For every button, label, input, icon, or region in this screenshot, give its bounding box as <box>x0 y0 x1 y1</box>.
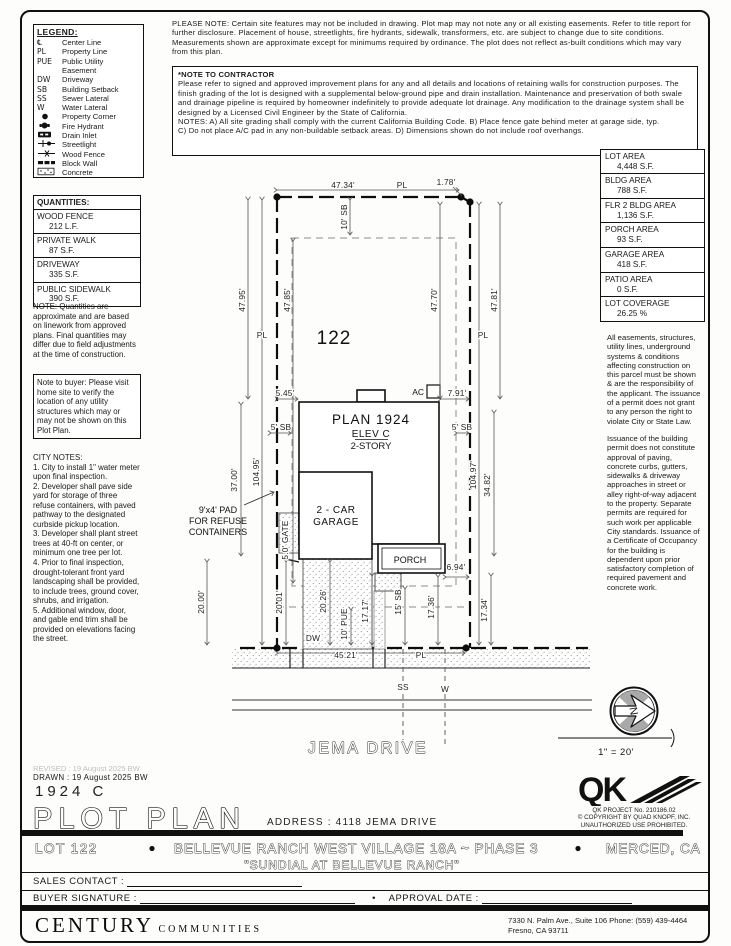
pl-label-right: PL <box>478 330 489 340</box>
dim-jog: 1.78' <box>437 177 456 187</box>
pl-label-left: PL <box>257 330 268 340</box>
street-and-sidewalk: SS W JEMA DRIVE <box>232 649 592 757</box>
quantity-row: PRIVATE WALK87 S.F. <box>33 233 141 259</box>
legend-item: PLProperty Line <box>37 47 140 56</box>
quantity-row: DRIVEWAY335 S.F. <box>33 257 141 283</box>
legend-item: SBBuilding Setback <box>37 84 140 93</box>
refuse-arrow <box>244 492 274 505</box>
dim-top-width: 47.34' <box>331 180 355 190</box>
street-name: JEMA DRIVE <box>308 740 428 757</box>
builder-name-2: COMMUNITIES <box>158 924 262 935</box>
lot-row-svg: LOT 122 BELLEVUE RANCH WEST VILLAGE 18A … <box>22 838 708 872</box>
quantities-table: QUANTITIES: WOOD FENCE212 L.F. PRIVATE W… <box>33 196 141 307</box>
plan-story: 2-STORY <box>351 441 392 452</box>
refuse-label-1: 9'x4' PAD <box>199 505 238 515</box>
dim-right-front: 17.34' <box>479 598 489 622</box>
lot-label: LOT 122 <box>35 841 98 856</box>
quantity-row: WOOD FENCE212 L.F. <box>33 209 141 235</box>
sales-contact-label: SALES CONTACT : <box>33 876 124 887</box>
city-label: MERCED, CA <box>606 841 701 856</box>
dim-pue: 10' PUE <box>339 608 349 640</box>
property-line-symbol: PL <box>37 47 62 56</box>
quantities-note: NOTE: Quantities are approximate and are… <box>33 302 140 360</box>
north-arrow: N <box>611 688 658 735</box>
dim-left-rear: 47.95' <box>237 288 247 312</box>
dim-left-setback: 5' SB <box>271 422 292 432</box>
porch-label: PORCH <box>394 555 427 565</box>
gate-label: 5.0' GATE <box>280 520 290 559</box>
plan-elev: ELEV C <box>352 429 391 440</box>
approval-date-field <box>482 893 632 904</box>
legend-item: DWDriveway <box>37 75 140 84</box>
sewer-lateral-label: SS <box>397 682 409 692</box>
dim-driveway-length: 20.26' <box>318 589 328 613</box>
qk-copyright-1: © COPYRIGHT BY QUAD KNOPF, INC. <box>560 814 708 821</box>
builder-address: 7330 N. Palm Ave., Suite 106 Phone: (559… <box>508 916 708 935</box>
refuse-label-3: CONTAINERS <box>189 527 247 537</box>
buyer-signature-field <box>140 893 355 904</box>
water-lateral-label: W <box>441 684 449 694</box>
buyer-signature-label: BUYER SIGNATURE : <box>33 893 137 904</box>
dim-right-rear: 47.81' <box>489 288 499 312</box>
bullet-icon <box>149 846 154 851</box>
dim-house-right-offset: 7.91' <box>448 388 467 398</box>
city-notes-title: CITY NOTES: <box>33 453 141 463</box>
dim-front-left-inner: 20.01' <box>274 590 284 614</box>
builder-name: CENTURY <box>35 913 154 937</box>
dim-right-rear-inner: 47.70' <box>429 288 439 312</box>
house-bay <box>357 390 385 402</box>
ac-pad <box>427 385 440 398</box>
bullet: • <box>372 893 376 904</box>
plot-plan-sheet: LEGEND: ℄Center Line PLProperty Line PUE… <box>0 0 731 946</box>
scale-bar: 1" = 20' <box>558 729 674 758</box>
dim-front-left: 20.00' <box>196 590 206 614</box>
dim-right-mid: 34.82' <box>482 473 492 497</box>
qk-logo: QK <box>578 772 703 806</box>
dim-house-depth: 37.00' <box>229 468 239 492</box>
divider-bar-top <box>22 830 683 836</box>
dim-house-left-offset: 5.45' <box>276 388 295 398</box>
builder-logo: CENTURY COMMUNITIES <box>35 913 262 938</box>
divider-line <box>22 872 708 873</box>
legend-item: ℄Center Line <box>37 38 140 47</box>
garage-label-1: 2 - CAR <box>316 505 355 516</box>
dim-left-rear-inner: 47.85' <box>282 288 292 312</box>
plan-name: PLAN 1924 <box>332 412 410 427</box>
dim-porch-front: 17.36' <box>426 595 436 619</box>
legend-item: Concrete <box>37 168 140 177</box>
dim-walk-length: 17.17' <box>360 599 370 623</box>
pue-symbol: PUE <box>37 57 62 66</box>
dim-front-setback: 15' SB <box>393 589 403 615</box>
svg-text:QK: QK <box>578 772 627 806</box>
bullet-icon <box>575 846 580 851</box>
pl-label-top: PL <box>397 180 408 190</box>
sales-contact-row: SALES CONTACT : <box>33 876 302 887</box>
builder-address-line1: 7330 N. Palm Ave., Suite 106 Phone: (559… <box>508 916 708 926</box>
dim-right-total: 104.97' <box>468 461 478 490</box>
sales-contact-field <box>127 876 302 887</box>
legend-item: SSSewer Lateral <box>37 94 140 103</box>
qk-credits: QK PROJECT No. 210186.02 © COPYRIGHT BY … <box>560 807 708 829</box>
refuse-label-2: FOR REFUSE <box>189 516 247 526</box>
scale-text: 1" = 20' <box>598 747 634 758</box>
concrete-icon <box>37 167 62 178</box>
revised-line: REVISED : 19 August 2025 BW <box>33 764 140 773</box>
jog-leader <box>453 187 462 196</box>
private-walk-area <box>374 591 385 649</box>
divider-line <box>22 890 708 891</box>
community-label: BELLEVUE RANCH WEST VILLAGE 18A ~ PHASE … <box>174 841 539 856</box>
dim-left-total: 104.95' <box>251 458 261 487</box>
centerline-symbol: ℄ <box>37 38 62 47</box>
porch-step-area <box>375 573 401 591</box>
setback-symbol: SB <box>37 85 62 94</box>
address-line: ADDRESS : 4118 JEMA DRIVE <box>267 817 437 828</box>
qk-copyright-2: UNAUTHORIZED USE PROHIBITED. <box>560 822 708 829</box>
city-notes-body: 1. City to install 1" water meter upon f… <box>33 463 141 644</box>
buyer-signature-row: BUYER SIGNATURE : • APPROVAL DATE : <box>33 893 632 904</box>
dim-front-width: 45.21' <box>334 650 358 660</box>
legend-box: LEGEND: ℄Center Line PLProperty Line PUE… <box>33 24 144 178</box>
contractor-note-box: *NOTE TO CONTRACTOR Please refer to sign… <box>172 66 698 156</box>
divider-bar-bottom <box>22 905 708 911</box>
contractor-note-title: *NOTE TO CONTRACTOR <box>178 70 692 79</box>
city-notes: CITY NOTES: 1. City to install 1" water … <box>33 453 141 644</box>
garage-label-2: GARAGE <box>313 517 359 528</box>
subdivision-label: "SUNDIAL AT BELLEVUE RANCH" <box>244 858 459 872</box>
builder-address-line2: Fresno, CA 93711 <box>508 926 708 936</box>
lot-number: 122 <box>317 328 352 349</box>
please-note: PLEASE NOTE: Certain site features may n… <box>172 19 698 57</box>
contractor-note-body: Please refer to signed and approved impr… <box>178 79 692 135</box>
buyer-note-box: Note to buyer: Please visit home site to… <box>33 374 141 439</box>
dim-rear-setback: 10' SB <box>339 204 349 230</box>
dim-porch-side: 6.94' <box>447 562 466 572</box>
driveway-symbol: DW <box>37 75 62 84</box>
drawn-line: DRAWN : 19 August 2025 BW <box>33 773 148 782</box>
ac-label: AC <box>412 387 424 397</box>
sewer-symbol: SS <box>37 94 62 103</box>
site-plan-drawing: SS W JEMA DRIVE <box>180 160 710 775</box>
approval-date-label: APPROVAL DATE : <box>389 893 479 904</box>
legend-item: PUEPublic Utility Easement <box>37 57 140 76</box>
pl-label-bottom: PL <box>416 650 427 660</box>
driveway-label: DW <box>306 633 320 643</box>
legend-title: LEGEND: <box>37 27 140 37</box>
dim-right-setback: 5' SB <box>452 422 473 432</box>
